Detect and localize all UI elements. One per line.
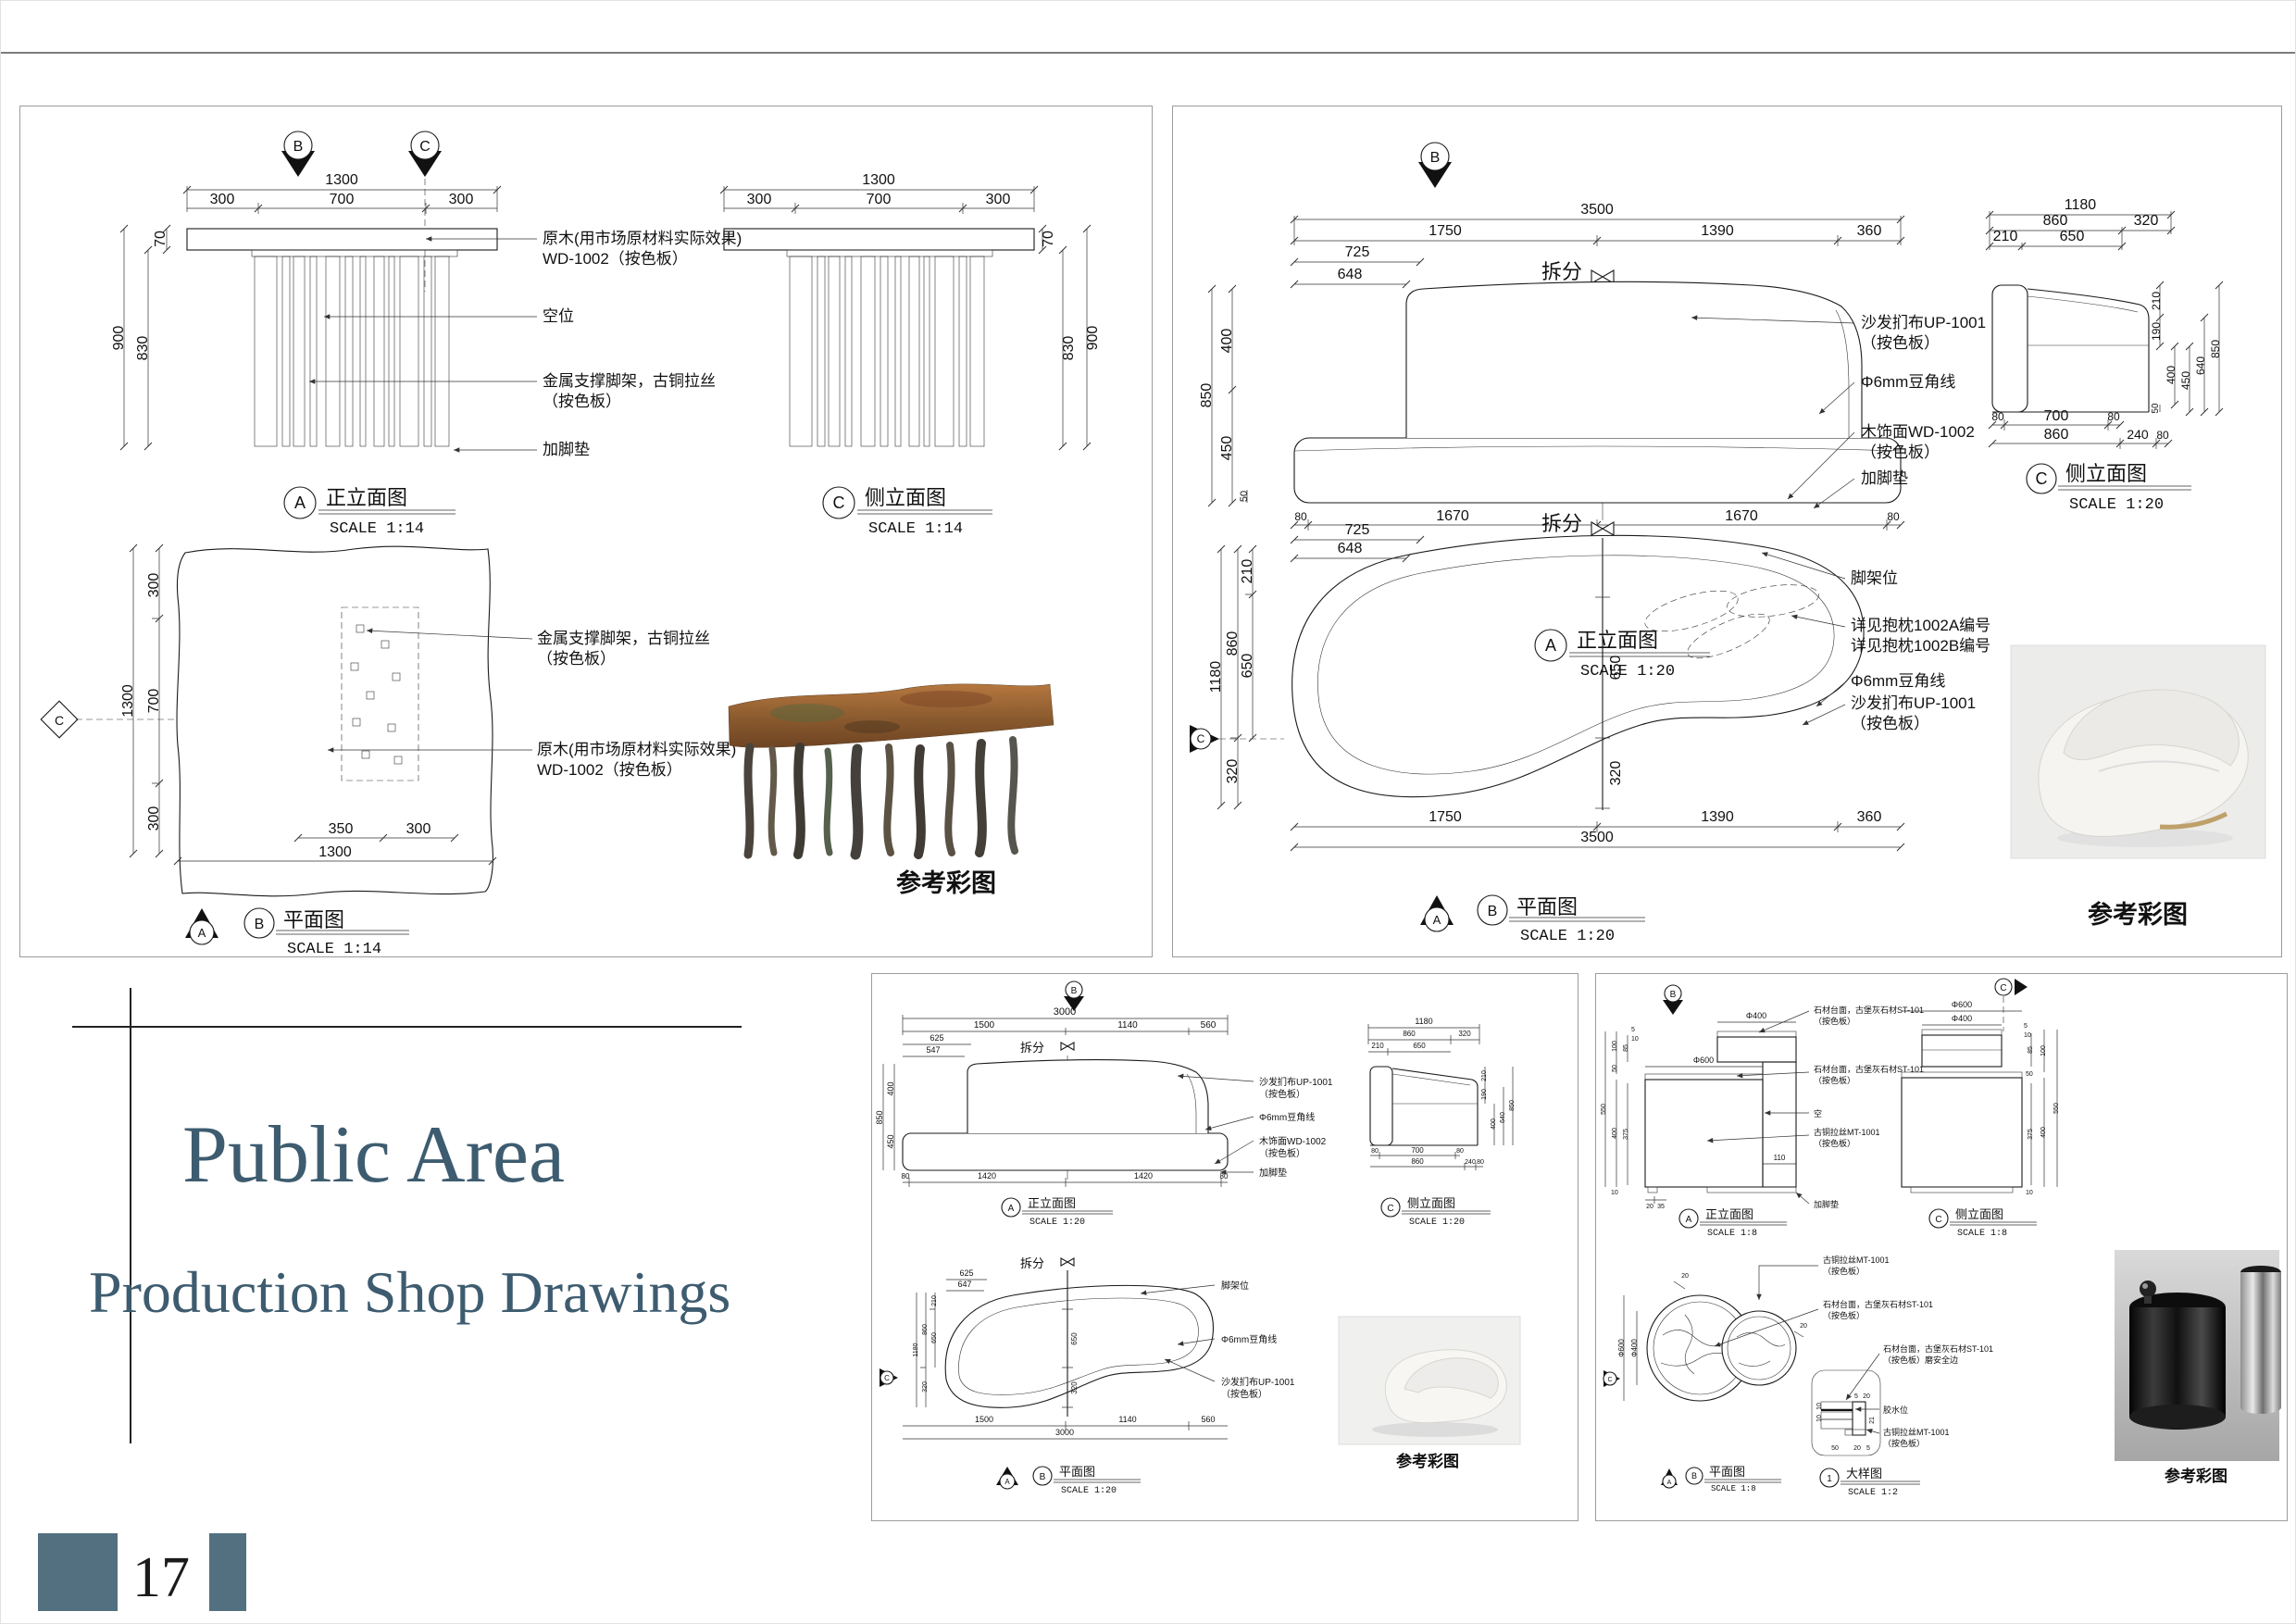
svg-text:沙发扪布UP-1001: 沙发扪布UP-1001 (1861, 314, 1986, 331)
svg-text:80: 80 (1456, 1148, 1464, 1155)
svg-text:1500: 1500 (975, 1415, 993, 1424)
svg-text:拆分: 拆分 (1541, 512, 1582, 535)
svg-text:1300: 1300 (120, 684, 136, 718)
svg-text:560: 560 (1201, 1020, 1217, 1031)
svg-text:80: 80 (1477, 1159, 1484, 1166)
svg-text:80: 80 (1294, 510, 1307, 523)
svg-text:（按色板）: （按色板） (1814, 1138, 1855, 1148)
svg-text:（按色板）: （按色板） (1259, 1147, 1305, 1159)
svg-text:80: 80 (1887, 510, 1900, 523)
svg-text:725: 725 (1345, 522, 1370, 538)
svg-text:Φ600: Φ600 (1952, 1000, 1972, 1009)
svg-text:625: 625 (930, 1033, 943, 1043)
svg-text:脚架位: 脚架位 (1851, 569, 1898, 587)
svg-text:900: 900 (111, 326, 127, 351)
svg-text:侧立面图: 侧立面图 (2065, 462, 2147, 485)
svg-text:850: 850 (2209, 340, 2222, 358)
svg-text:脚架位: 脚架位 (1221, 1280, 1249, 1292)
svg-text:A: A (1008, 1204, 1015, 1214)
svg-text:B: B (1691, 1471, 1697, 1480)
svg-text:70: 70 (1041, 231, 1056, 247)
svg-text:SCALE 1:8: SCALE 1:8 (1711, 1484, 1756, 1493)
svg-text:C: C (2036, 469, 2048, 488)
svg-text:700: 700 (2044, 408, 2069, 424)
svg-text:375: 375 (2028, 1129, 2034, 1140)
svg-text:320: 320 (922, 1381, 929, 1393)
svg-text:700: 700 (867, 192, 892, 207)
svg-text:详见抱枕1002A编号: 详见抱枕1002A编号 (1851, 617, 1990, 634)
svg-text:金属支撑脚架，古铜拉丝: 金属支撑脚架，古铜拉丝 (537, 630, 710, 647)
svg-text:C: C (419, 139, 430, 155)
svg-text:加脚垫: 加脚垫 (543, 441, 590, 458)
svg-text:700: 700 (330, 192, 355, 207)
plan-view-stone: Φ600 Φ400 20 20 古铜拉丝MT-1001 （按色板） 石材台面，古… (1603, 1255, 1933, 1493)
svg-text:547: 547 (926, 1045, 940, 1055)
panel-stone-tables: B Φ400 Φ600 110 550 100 50 400 85 375 5 … (1595, 973, 2288, 1521)
reference-photo-table: 参考彩图 (729, 684, 1054, 897)
svg-text:B: B (1670, 990, 1677, 1000)
svg-text:10: 10 (1611, 1190, 1618, 1196)
svg-text:SCALE 1:14: SCALE 1:14 (868, 520, 963, 538)
svg-text:原木(用市场原材料实际效果): 原木(用市场原材料实际效果) (537, 741, 736, 758)
svg-text:650: 650 (2060, 229, 2085, 244)
svg-text:B: B (1071, 986, 1078, 996)
svg-text:（按色板）: （按色板） (1851, 715, 1929, 732)
svg-text:SCALE 1:20: SCALE 1:20 (2069, 496, 2164, 514)
svg-text:300: 300 (986, 192, 1011, 207)
svg-text:B: B (1430, 150, 1441, 166)
svg-text:SCALE 1:20: SCALE 1:20 (1029, 1218, 1085, 1228)
svg-text:正立面图: 正立面图 (1577, 629, 1658, 652)
svg-text:3500: 3500 (1580, 202, 1614, 218)
svg-text:21: 21 (1869, 1417, 1876, 1424)
svg-text:400: 400 (1612, 1128, 1618, 1139)
svg-text:SCALE 1:14: SCALE 1:14 (330, 520, 424, 538)
svg-text:（按色板）: （按色板） (1823, 1310, 1865, 1320)
svg-text:C: C (884, 1374, 890, 1382)
svg-text:沙发扪布UP-1001: 沙发扪布UP-1001 (1851, 694, 1976, 712)
svg-text:35: 35 (1657, 1204, 1665, 1210)
svg-text:Φ400: Φ400 (1746, 1011, 1766, 1020)
svg-text:SCALE 1:14: SCALE 1:14 (287, 941, 381, 957)
svg-text:1180: 1180 (913, 1343, 919, 1356)
section-marker-b: B (281, 131, 315, 177)
svg-text:20: 20 (1853, 1445, 1861, 1452)
svg-text:1670: 1670 (1436, 508, 1469, 524)
svg-text:3500: 3500 (1580, 830, 1614, 845)
svg-text:Φ6mm豆角线: Φ6mm豆角线 (1259, 1111, 1315, 1123)
svg-text:SCALE 1:20: SCALE 1:20 (1580, 663, 1675, 681)
svg-text:350: 350 (329, 821, 354, 837)
svg-text:A: A (1545, 636, 1556, 655)
svg-text:Φ600: Φ600 (1693, 1056, 1714, 1065)
svg-text:85: 85 (2028, 1046, 2034, 1054)
svg-text:C: C (1607, 1377, 1612, 1383)
svg-text:20: 20 (1646, 1204, 1653, 1210)
svg-text:1180: 1180 (2065, 197, 2097, 213)
svg-text:400: 400 (886, 1081, 895, 1095)
page-number: 17 (129, 1545, 193, 1611)
svg-text:空: 空 (1814, 1108, 1822, 1118)
svg-text:210: 210 (1993, 229, 2018, 244)
svg-text:700: 700 (1411, 1146, 1424, 1155)
svg-text:SCALE 1:20: SCALE 1:20 (1520, 928, 1615, 945)
svg-text:1420: 1420 (978, 1171, 996, 1181)
svg-text:Φ400: Φ400 (1952, 1014, 1972, 1023)
svg-text:B: B (255, 917, 265, 932)
svg-text:（按色板）磨安全边: （按色板）磨安全边 (1883, 1355, 1958, 1365)
svg-text:B: B (293, 139, 304, 155)
drawing-sheet: B C 1300 300 700 300 70 900 830 (0, 0, 2296, 1624)
svg-text:300: 300 (449, 192, 474, 207)
svg-text:80: 80 (2156, 429, 2169, 442)
panel-small-sofa: B 3000 1500 1140 560 625 547 850 400 450… (871, 973, 1578, 1521)
svg-text:SCALE 1:20: SCALE 1:20 (1409, 1218, 1465, 1228)
svg-text:加脚垫: 加脚垫 (1814, 1199, 1839, 1209)
svg-text:1180: 1180 (1415, 1017, 1432, 1026)
panel-wood-table: B C 1300 300 700 300 70 900 830 (19, 106, 1153, 957)
svg-text:空位: 空位 (543, 307, 574, 325)
svg-text:C: C (1387, 1204, 1393, 1214)
svg-text:5: 5 (1866, 1445, 1870, 1452)
svg-text:WD-1002（按色板）: WD-1002（按色板） (537, 761, 682, 779)
svg-text:50: 50 (1831, 1445, 1839, 1452)
svg-text:1300: 1300 (862, 172, 895, 188)
side-elevation-table: 1300 300 700 300 70 830 900 C 侧立面图 SCALE… (720, 172, 1101, 538)
svg-text:3000: 3000 (1055, 1428, 1074, 1437)
svg-text:SCALE 1:8: SCALE 1:8 (1957, 1229, 2007, 1239)
svg-text:450: 450 (886, 1134, 895, 1148)
svg-text:加脚垫: 加脚垫 (1861, 469, 1908, 487)
svg-text:平面图: 平面图 (1516, 895, 1578, 918)
svg-text:古铜拉丝MT-1001: 古铜拉丝MT-1001 (1883, 1427, 1950, 1437)
svg-text:625: 625 (959, 1268, 973, 1278)
svg-text:侧立面图: 侧立面图 (865, 486, 946, 509)
side-elevation-stone: C Φ600 Φ400 85 375 100 400 550 5 10 50 1… (1902, 979, 2060, 1239)
section-marker-c: C (1995, 979, 2028, 1031)
svg-text:640: 640 (2194, 356, 2207, 375)
front-elevation-stone: Φ400 Φ600 110 550 100 50 400 85 375 5 10… (1601, 1005, 1924, 1239)
svg-text:450: 450 (2179, 371, 2192, 390)
svg-text:（按色板）: （按色板） (1259, 1088, 1305, 1100)
svg-text:240: 240 (2127, 427, 2149, 442)
reference-caption: 参考彩图 (1396, 1452, 1459, 1470)
svg-text:Φ6mm豆角线: Φ6mm豆角线 (1221, 1333, 1277, 1345)
plan-view-sofa: 拆分 725 648 1180 860 320 210 650 650 320 … (1190, 512, 1990, 945)
svg-text:5: 5 (1854, 1393, 1858, 1400)
svg-text:300: 300 (210, 192, 235, 207)
svg-text:80: 80 (1991, 410, 2004, 423)
side-elevation-sofa-small: 1180 860 320 210 650 210 190 400 640 850… (1368, 1017, 1516, 1228)
svg-text:Φ6mm豆角线: Φ6mm豆角线 (1851, 672, 1945, 690)
svg-text:850: 850 (1199, 383, 1215, 408)
svg-text:A: A (1667, 1480, 1672, 1486)
svg-text:1140: 1140 (1118, 1415, 1136, 1424)
svg-text:（按色板）: （按色板） (537, 650, 616, 668)
svg-text:648: 648 (1338, 541, 1363, 556)
svg-text:70: 70 (153, 231, 168, 247)
svg-text:石材台面，古堡灰石材ST-101: 石材台面，古堡灰石材ST-101 (1823, 1299, 1933, 1309)
svg-text:石材台面，古堡灰石材ST-101: 石材台面，古堡灰石材ST-101 (1883, 1343, 1993, 1354)
svg-text:（按色板）: （按色板） (543, 393, 621, 410)
svg-text:550: 550 (1601, 1104, 1607, 1115)
svg-text:SCALE 1:20: SCALE 1:20 (1061, 1486, 1117, 1496)
reference-caption: 参考彩图 (2165, 1467, 2227, 1485)
svg-text:650: 650 (1608, 656, 1624, 681)
svg-text:古铜拉丝MT-1001: 古铜拉丝MT-1001 (1814, 1127, 1880, 1137)
front-elevation-sofa-small: 3000 1500 1140 560 625 547 850 400 450 拆… (875, 1006, 1333, 1228)
svg-text:沙发扪布UP-1001: 沙发扪布UP-1001 (1221, 1376, 1295, 1388)
svg-text:900: 900 (1085, 326, 1101, 351)
svg-text:1300: 1300 (318, 844, 352, 860)
svg-text:10: 10 (1816, 1403, 1823, 1410)
svg-text:木饰面WD-1002: 木饰面WD-1002 (1259, 1135, 1327, 1147)
svg-text:650: 650 (1070, 1332, 1079, 1345)
svg-text:110: 110 (1774, 1154, 1786, 1162)
svg-text:400: 400 (1219, 329, 1235, 354)
svg-text:300: 300 (406, 821, 431, 837)
page-title: Public Area (182, 1108, 565, 1202)
svg-text:240: 240 (1465, 1159, 1476, 1166)
svg-text:1750: 1750 (1429, 809, 1462, 825)
plan-view-sofa-small: 拆分 625 647 1180 860 320 210 650 650 320 … (880, 1256, 1295, 1496)
svg-text:石材台面，古堡灰石材ST-101: 石材台面，古堡灰石材ST-101 (1814, 1005, 1924, 1015)
reference-photo-sofa: 参考彩图 (2011, 645, 2265, 929)
svg-text:647: 647 (957, 1280, 971, 1289)
svg-text:加脚垫: 加脚垫 (1259, 1167, 1287, 1179)
footer-square-large (38, 1533, 118, 1611)
svg-text:700: 700 (146, 689, 162, 714)
svg-text:560: 560 (1201, 1415, 1215, 1424)
svg-text:C: C (55, 713, 64, 728)
svg-text:550: 550 (2053, 1103, 2060, 1114)
svg-text:210: 210 (1240, 559, 1255, 584)
svg-text:平面图: 平面图 (283, 908, 344, 931)
svg-text:860: 860 (1403, 1030, 1416, 1038)
svg-text:侧立面图: 侧立面图 (1407, 1196, 1455, 1210)
svg-text:（按色板）: （按色板） (1814, 1075, 1855, 1085)
svg-text:（按色板）: （按色板） (1883, 1438, 1925, 1448)
svg-text:古铜拉丝MT-1001: 古铜拉丝MT-1001 (1823, 1255, 1890, 1265)
svg-text:210: 210 (931, 1295, 938, 1306)
svg-text:860: 860 (922, 1324, 929, 1335)
svg-text:320: 320 (1225, 759, 1241, 784)
svg-text:300: 300 (146, 806, 162, 831)
svg-text:C: C (833, 493, 845, 512)
svg-text:1750: 1750 (1429, 223, 1462, 239)
svg-text:320: 320 (1070, 1381, 1079, 1394)
svg-text:木饰面WD-1002: 木饰面WD-1002 (1861, 423, 1975, 441)
svg-text:20: 20 (1800, 1323, 1807, 1330)
svg-text:金属支撑脚架，古铜拉丝: 金属支撑脚架，古铜拉丝 (543, 372, 716, 390)
svg-text:850: 850 (1509, 1100, 1516, 1111)
svg-text:（按色板）: （按色板） (1221, 1388, 1267, 1400)
svg-text:300: 300 (146, 573, 162, 598)
svg-text:1180: 1180 (1208, 661, 1224, 693)
svg-text:1300: 1300 (325, 172, 358, 188)
svg-text:Φ600: Φ600 (1617, 1339, 1626, 1357)
top-rule (1, 52, 2296, 54)
svg-text:1500: 1500 (974, 1020, 995, 1031)
svg-text:210: 210 (1371, 1042, 1384, 1050)
svg-text:860: 860 (1411, 1157, 1424, 1166)
reference-caption: 参考彩图 (896, 868, 996, 897)
svg-text:1670: 1670 (1725, 508, 1758, 524)
svg-text:320: 320 (1458, 1030, 1471, 1038)
svg-text:860: 860 (1225, 631, 1241, 656)
reference-photo-sofa-small: 参考彩图 (1339, 1317, 1520, 1470)
svg-text:400: 400 (2040, 1127, 2047, 1138)
svg-text:648: 648 (1338, 267, 1363, 282)
svg-text:平面图: 平面图 (1059, 1465, 1095, 1479)
svg-text:1420: 1420 (1134, 1171, 1153, 1181)
svg-text:210: 210 (1481, 1070, 1488, 1081)
svg-text:20: 20 (1863, 1393, 1870, 1400)
svg-text:WD-1002（按色板）: WD-1002（按色板） (543, 250, 688, 268)
svg-text:原木(用市场原材料实际效果): 原木(用市场原材料实际效果) (543, 230, 742, 247)
svg-text:190: 190 (2150, 322, 2163, 341)
svg-text:A: A (198, 926, 206, 940)
svg-text:50: 50 (2151, 403, 2161, 414)
svg-text:650: 650 (1413, 1042, 1426, 1050)
svg-text:360: 360 (1857, 223, 1882, 239)
svg-text:石材台面，古堡灰石材ST-101: 石材台面，古堡灰石材ST-101 (1814, 1064, 1924, 1074)
svg-text:C: C (1197, 732, 1205, 745)
svg-text:50: 50 (1612, 1065, 1618, 1072)
svg-text:50: 50 (2026, 1071, 2033, 1078)
reference-caption: 参考彩图 (2088, 900, 2188, 929)
svg-text:沙发扪布UP-1001: 沙发扪布UP-1001 (1259, 1076, 1333, 1088)
svg-text:850: 850 (875, 1110, 884, 1124)
svg-text:210: 210 (2150, 292, 2163, 310)
svg-text:A: A (1686, 1215, 1692, 1225)
svg-text:（按色板）: （按色板） (1861, 443, 1940, 461)
panel-large-sofa: B 3500 1750 1390 360 725 648 850 400 450… (1172, 106, 2282, 957)
svg-text:A: A (1004, 1478, 1010, 1486)
plan-view-table: 1300 300 700 300 350 300 1300 C 金属支撑脚架，古… (41, 544, 736, 957)
front-elevation-table: 1300 300 700 300 70 900 830 原木(用市场原材料实际效… (111, 172, 742, 538)
svg-text:650: 650 (931, 1332, 938, 1343)
svg-text:胶水位: 胶水位 (1883, 1405, 1908, 1415)
svg-text:360: 360 (1857, 809, 1882, 825)
svg-text:85: 85 (1623, 1044, 1629, 1052)
svg-text:5: 5 (2024, 1023, 2028, 1030)
svg-text:A: A (294, 493, 306, 512)
svg-text:（按色板）: （按色板） (1823, 1266, 1865, 1276)
svg-text:375: 375 (1623, 1129, 1629, 1140)
side-elevation-sofa: 1180 860 320 210 650 210 190 50 400 450 … (1986, 197, 2223, 514)
svg-text:80: 80 (1220, 1172, 1229, 1181)
svg-text:830: 830 (1061, 336, 1077, 361)
svg-text:A: A (1433, 913, 1441, 927)
svg-text:（按色板）: （按色板） (1861, 334, 1940, 352)
svg-text:3000: 3000 (1054, 1006, 1076, 1018)
front-elevation-sofa: 3500 1750 1390 360 725 648 850 400 450 5… (1199, 202, 1986, 681)
svg-text:80: 80 (1371, 1148, 1379, 1155)
svg-text:860: 860 (2043, 213, 2068, 229)
svg-text:10: 10 (2024, 1032, 2031, 1039)
page-subtitle: Production Shop Drawings (89, 1258, 730, 1327)
svg-text:C: C (1935, 1215, 1941, 1225)
section-marker-b: B (1418, 143, 1452, 188)
svg-text:详见抱枕1002B编号: 详见抱枕1002B编号 (1851, 637, 1990, 655)
svg-text:830: 830 (135, 336, 151, 361)
svg-text:400: 400 (2165, 366, 2177, 384)
svg-text:正立面图: 正立面图 (1028, 1196, 1076, 1210)
svg-text:100: 100 (1612, 1041, 1618, 1052)
svg-text:10: 10 (1631, 1036, 1639, 1043)
svg-text:80: 80 (902, 1172, 910, 1181)
svg-text:1390: 1390 (1701, 223, 1734, 239)
svg-text:侧立面图: 侧立面图 (1955, 1207, 2003, 1221)
svg-text:B: B (1040, 1472, 1046, 1482)
svg-text:大样图: 大样图 (1846, 1467, 1882, 1480)
title-crossline-horizontal (72, 1026, 742, 1028)
section-marker-c-plan: C (880, 1368, 898, 1387)
svg-text:平面图: 平面图 (1709, 1465, 1745, 1479)
svg-text:450: 450 (1219, 436, 1235, 461)
svg-text:SCALE 1:8: SCALE 1:8 (1707, 1229, 1757, 1239)
section-marker-c-plan: C (1603, 1370, 1620, 1387)
svg-text:10: 10 (1816, 1415, 1823, 1422)
svg-text:725: 725 (1345, 244, 1370, 260)
svg-text:640: 640 (1500, 1112, 1506, 1123)
svg-text:Φ6mm豆角线: Φ6mm豆角线 (1861, 373, 1955, 391)
reference-photo-stone: 参考彩图 (2115, 1250, 2281, 1485)
svg-text:320: 320 (1608, 761, 1624, 786)
svg-text:B: B (1488, 904, 1498, 919)
svg-text:50: 50 (1239, 491, 1250, 502)
section-marker-c: C (408, 131, 442, 292)
svg-text:320: 320 (2134, 213, 2159, 229)
section-marker-b: B (1663, 985, 1683, 1015)
footer-square-small (209, 1533, 246, 1611)
svg-text:100: 100 (2040, 1045, 2047, 1056)
svg-text:650: 650 (1240, 654, 1255, 679)
svg-text:5: 5 (1631, 1027, 1635, 1033)
svg-text:10: 10 (2026, 1190, 2033, 1196)
svg-text:SCALE 1:2: SCALE 1:2 (1848, 1488, 1898, 1498)
svg-text:C: C (2000, 983, 2006, 993)
svg-text:860: 860 (2044, 427, 2069, 443)
svg-text:拆分: 拆分 (1541, 260, 1582, 283)
svg-text:190: 190 (1481, 1089, 1488, 1100)
svg-text:正立面图: 正立面图 (1705, 1207, 1753, 1221)
svg-text:400: 400 (1491, 1118, 1497, 1130)
detail-view-stone: 5 20 10 10 21 50 20 5 石材台面，古堡灰石材ST-101 （… (1812, 1343, 1993, 1498)
svg-text:正立面图: 正立面图 (326, 486, 407, 509)
svg-text:20: 20 (1681, 1273, 1689, 1280)
title-crossline-vertical (130, 988, 131, 1443)
svg-text:1390: 1390 (1701, 809, 1734, 825)
svg-text:（按色板）: （按色板） (1814, 1016, 1855, 1026)
svg-text:拆分: 拆分 (1020, 1256, 1044, 1270)
svg-text:拆分: 拆分 (1020, 1041, 1044, 1055)
svg-text:300: 300 (747, 192, 772, 207)
svg-text:Φ400: Φ400 (1630, 1339, 1639, 1357)
svg-text:80: 80 (2107, 410, 2120, 423)
svg-text:1140: 1140 (1117, 1020, 1138, 1031)
svg-text:1: 1 (1827, 1474, 1832, 1484)
